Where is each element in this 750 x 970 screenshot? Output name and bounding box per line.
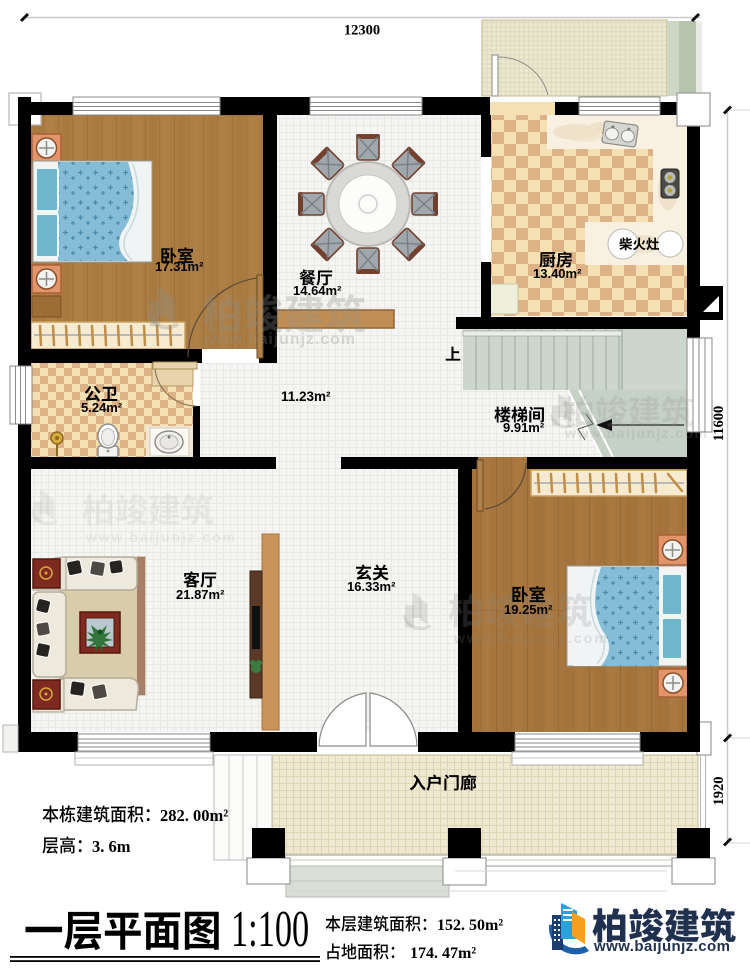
svg-text:5.24m²: 5.24m²: [81, 400, 123, 415]
svg-text:12300: 12300: [344, 23, 380, 39]
svg-text:174. 47m²: 174. 47m²: [410, 945, 476, 962]
svg-text:11.23m²: 11.23m²: [281, 389, 331, 404]
svg-text:152. 50m²: 152. 50m²: [437, 917, 503, 934]
svg-text:19.25m²: 19.25m²: [504, 602, 553, 617]
svg-text:14.64m²: 14.64m²: [293, 283, 342, 298]
svg-text:www.baijunjz.com: www.baijunjz.com: [564, 425, 707, 441]
svg-text:1920: 1920: [711, 777, 727, 806]
svg-text:16.33m²: 16.33m²: [347, 579, 396, 594]
svg-text:11600: 11600: [711, 406, 727, 441]
svg-text:21.87m²: 21.87m²: [176, 587, 225, 602]
svg-text:1:100: 1:100: [231, 900, 309, 958]
svg-text:13.40m²: 13.40m²: [533, 266, 582, 281]
svg-text:9.91m²: 9.91m²: [503, 420, 545, 435]
svg-text:www.baijunjz.com: www.baijunjz.com: [593, 938, 730, 955]
svg-text:17.31m²: 17.31m²: [155, 259, 204, 274]
svg-text:www.baijunjz.com: www.baijunjz.com: [202, 331, 355, 348]
svg-text:3. 6m: 3. 6m: [92, 837, 131, 856]
svg-text:282. 00m²: 282. 00m²: [160, 806, 228, 825]
